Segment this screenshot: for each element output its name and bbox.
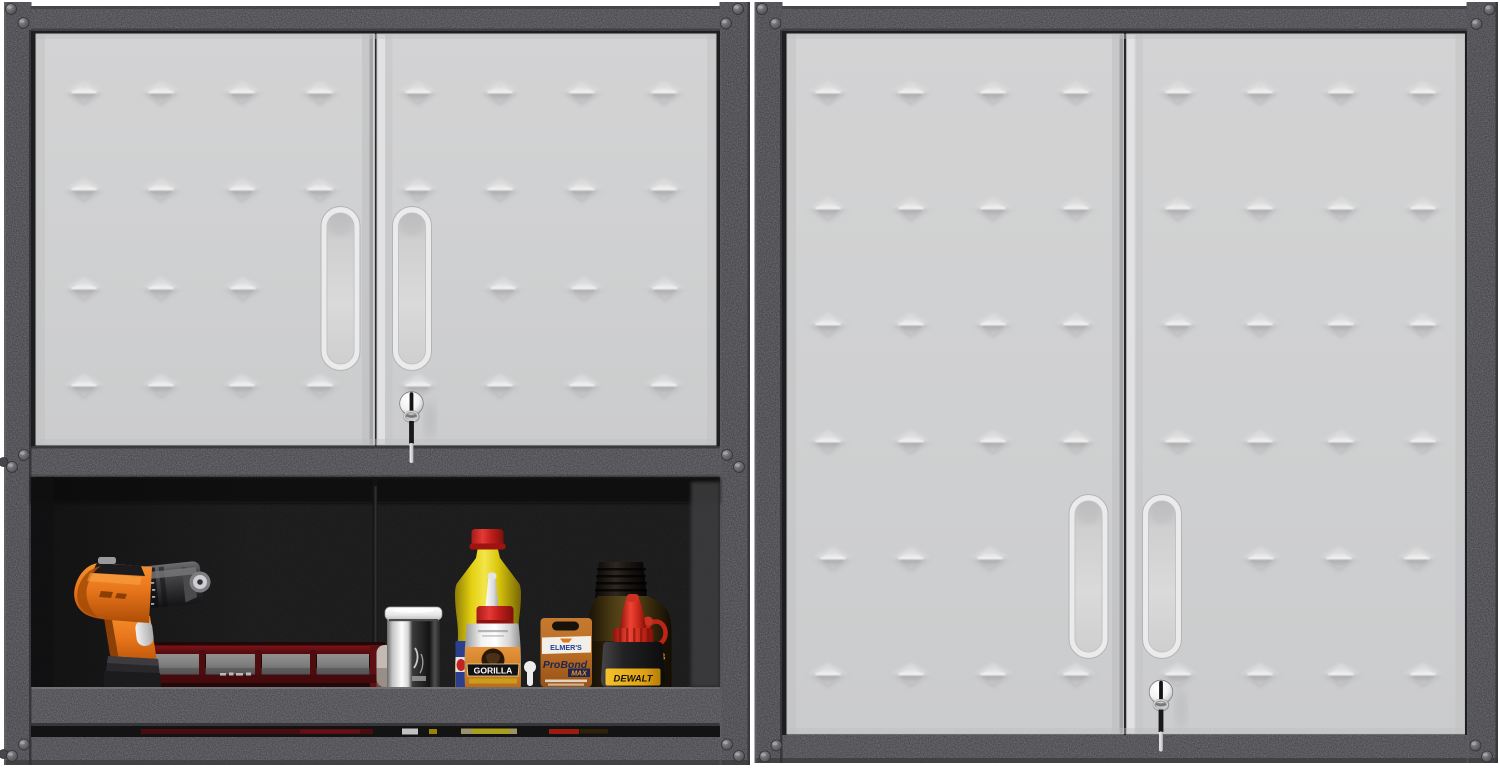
- svg-text:DEWALT: DEWALT: [614, 673, 654, 684]
- svg-text:ELMER'S: ELMER'S: [550, 643, 582, 652]
- svg-text:GORILLA: GORILLA: [474, 666, 513, 676]
- svg-text:MAX: MAX: [571, 671, 588, 678]
